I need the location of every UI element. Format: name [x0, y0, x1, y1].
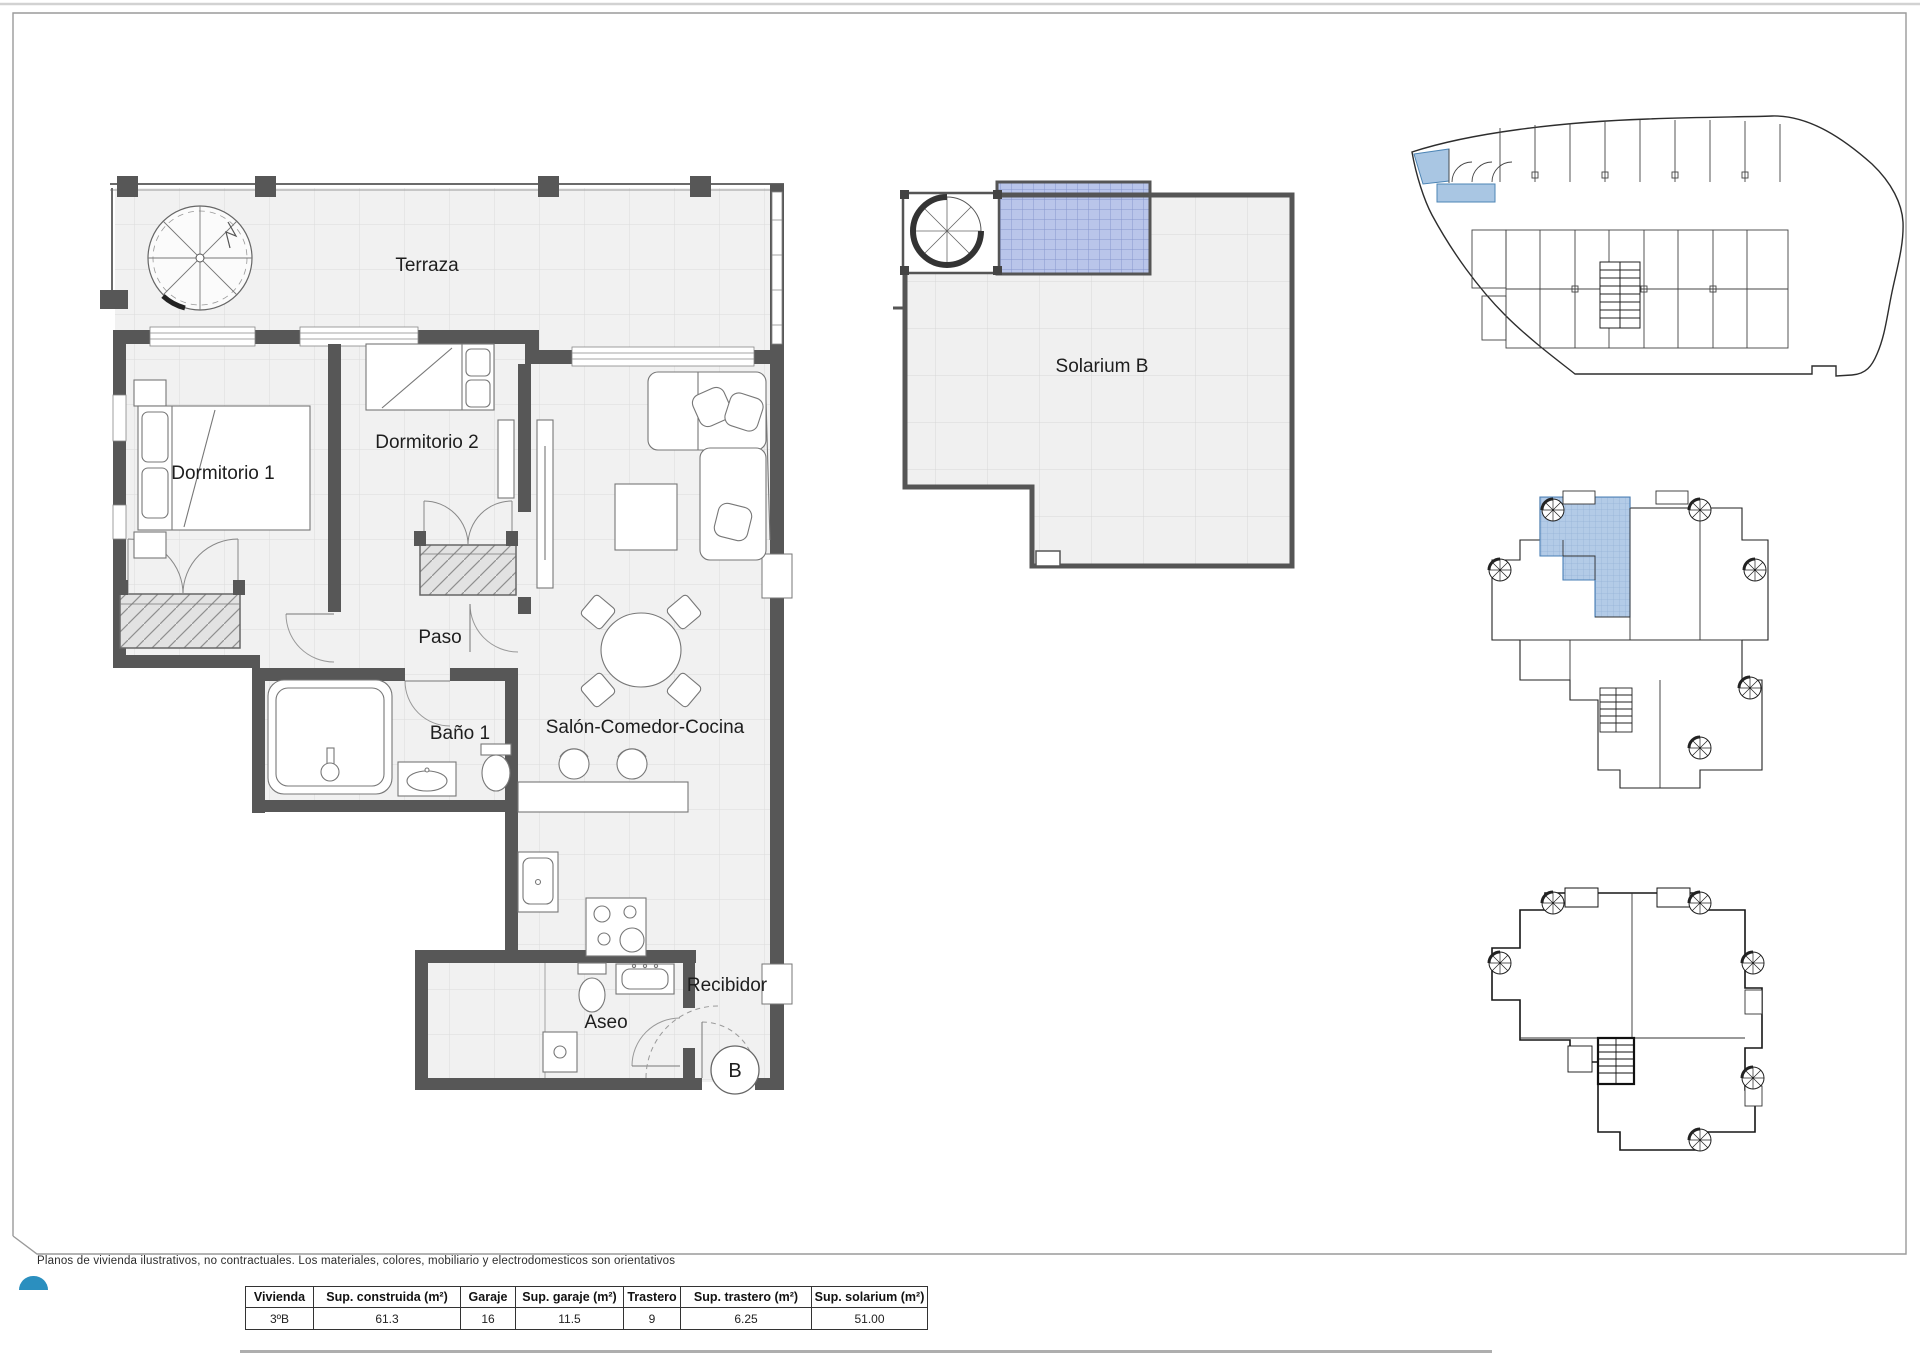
value-garaje: 16 [461, 1308, 516, 1330]
col-sup-trastero: Sup. trastero (m²) [681, 1287, 812, 1308]
col-sup-solarium: Sup. solarium (m²) [812, 1287, 928, 1308]
label-bano-1: Baño 1 [430, 723, 490, 744]
floor-plan-sheet: B [0, 0, 1920, 1357]
spiral-stair-icon [1742, 952, 1764, 974]
terrace-spiral-stair [148, 206, 252, 310]
surface-summary-table: Vivienda Sup. construida (m²) Garaje Sup… [245, 1286, 928, 1330]
label-solarium: Solarium B [1056, 356, 1149, 377]
floor-key-plan [1489, 491, 1768, 788]
label-salon: Salón-Comedor-Cocina [546, 717, 745, 738]
label-recibidor: Recibidor [687, 975, 768, 996]
dorm1-window [150, 327, 255, 346]
spiral-stair-icon [1742, 1067, 1764, 1089]
table-value-row: 3ºB 61.3 16 11.5 9 6.25 51.00 [246, 1308, 928, 1330]
spiral-stair-icon [1689, 892, 1711, 914]
col-sup-construida: Sup. construida (m²) [314, 1287, 461, 1308]
garage-outline [1412, 116, 1903, 376]
garage-stair-core [1600, 262, 1640, 328]
salon-window [572, 347, 754, 366]
solarium-plan: Solarium B [893, 182, 1292, 566]
spiral-stair-icon [1489, 559, 1511, 581]
spiral-stair-icon [1489, 952, 1511, 974]
label-terraza: Terraza [395, 255, 459, 276]
spiral-stair-icon [1542, 499, 1564, 521]
floor-key-stair-core [1600, 688, 1632, 732]
col-garaje: Garaje [461, 1287, 516, 1308]
value-sup-garaje: 11.5 [516, 1308, 624, 1330]
value-vivienda: 3ºB [246, 1308, 314, 1330]
entrance-letter: B [728, 1060, 741, 1082]
disclaimer-note: Planos de vivienda ilustrativos, no cont… [37, 1255, 675, 1267]
value-sup-solarium: 51.00 [812, 1308, 928, 1330]
plans-drawing: B [0, 0, 1920, 1357]
col-trastero: Trastero [624, 1287, 681, 1308]
spiral-stair-icon [1689, 1129, 1711, 1151]
label-aseo: Aseo [584, 1012, 627, 1033]
roof-key-outline [1492, 893, 1762, 1150]
garage-key-plan [1412, 116, 1903, 376]
entrance-marker: B [711, 1046, 759, 1094]
value-sup-construida: 61.3 [314, 1308, 461, 1330]
label-dormitorio-1: Dormitorio 1 [171, 463, 274, 484]
spiral-stair-icon [1744, 559, 1766, 581]
label-dormitorio-2: Dormitorio 2 [375, 432, 478, 453]
roof-key-plan [1489, 888, 1764, 1151]
bottom-divider-line [240, 1350, 1492, 1353]
spiral-stair-icon [1689, 737, 1711, 759]
label-paso: Paso [418, 627, 461, 648]
value-sup-trastero: 6.25 [681, 1308, 812, 1330]
spiral-stair-icon [1739, 677, 1761, 699]
col-sup-garaje: Sup. garaje (m²) [516, 1287, 624, 1308]
table-header-row: Vivienda Sup. construida (m²) Garaje Sup… [246, 1287, 928, 1308]
dorm2-window [300, 327, 418, 346]
spiral-stair-icon [1689, 499, 1711, 521]
spiral-stair-icon [1542, 892, 1564, 914]
col-vivienda: Vivienda [246, 1287, 314, 1308]
solarium-stair-room [900, 190, 1002, 275]
main-floor-plan: B [100, 176, 792, 1094]
value-trastero: 9 [624, 1308, 681, 1330]
